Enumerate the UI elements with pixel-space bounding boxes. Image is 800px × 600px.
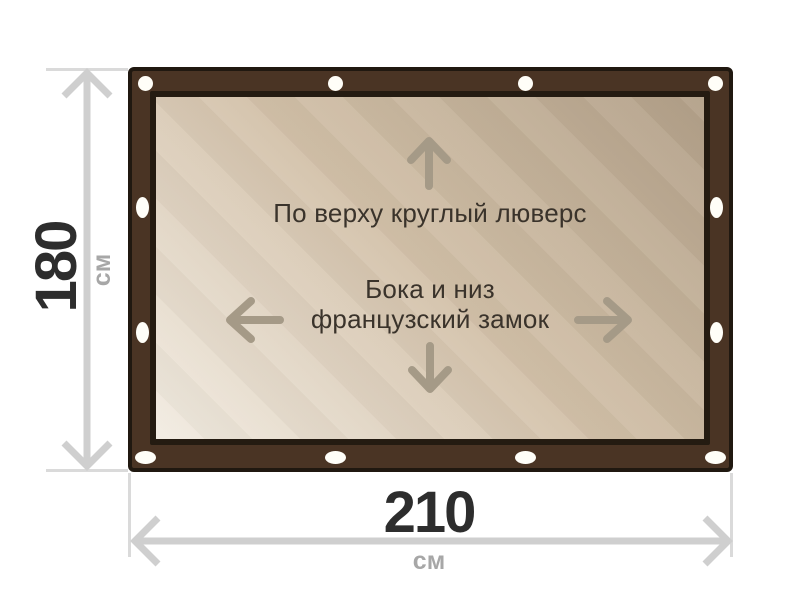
round-grommet-icon (138, 76, 153, 91)
width-dimension-value: 210 (329, 486, 529, 540)
slot-grommet-icon (705, 451, 726, 464)
slot-grommet-icon (136, 197, 149, 218)
slot-grommet-icon (135, 451, 156, 464)
sides-fastener-note-line2: французский замок (180, 304, 680, 334)
slot-grommet-icon (325, 451, 346, 464)
top-fastener-note: По верху круглый люверс (180, 198, 680, 229)
tarpaulin-panel (150, 91, 710, 445)
slot-grommet-icon (136, 322, 149, 343)
product-dimension-diagram: По верху круглый люверс Бока и низ франц… (0, 0, 800, 600)
slot-grommet-icon (710, 197, 723, 218)
round-grommet-icon (708, 76, 723, 91)
slot-grommet-icon (515, 451, 536, 464)
sides-fastener-note: Бока и низ французский замок (180, 274, 680, 334)
tarpaulin-frame (128, 67, 733, 472)
sides-fastener-note-line1: Бока и низ (180, 274, 680, 304)
width-dimension-unit: см (379, 548, 479, 574)
round-grommet-icon (328, 76, 343, 91)
slot-grommet-icon (710, 322, 723, 343)
round-grommet-icon (518, 76, 533, 91)
height-dimension-value: 180 (27, 207, 87, 327)
height-dimension-unit: см (89, 240, 115, 300)
